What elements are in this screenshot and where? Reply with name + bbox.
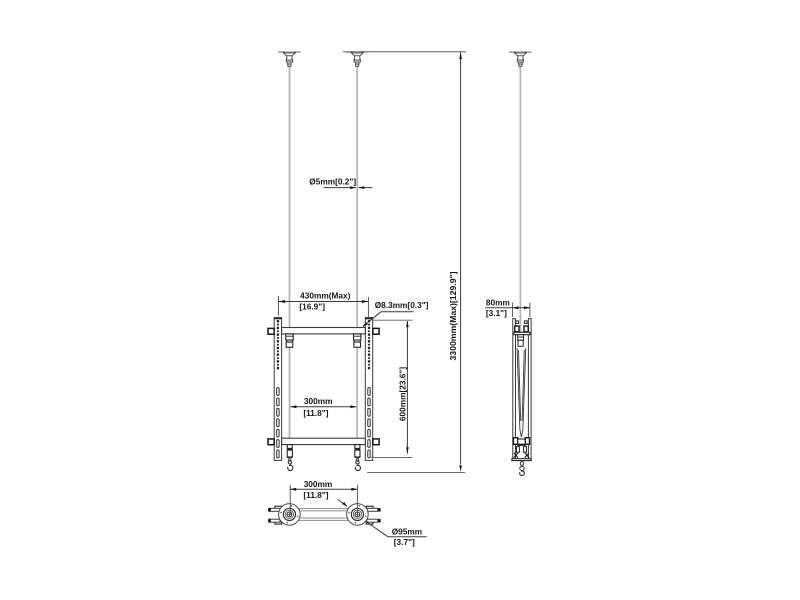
svg-text:600mm[23.6"]: 600mm[23.6"] xyxy=(397,367,407,421)
svg-text:[3.1"]: [3.1"] xyxy=(486,308,507,318)
svg-text:[16.9"]: [16.9"] xyxy=(299,302,325,312)
svg-text:Ø8.3mm[0.3"]: Ø8.3mm[0.3"] xyxy=(375,300,429,310)
svg-text:Ø5mm[0.2"]: Ø5mm[0.2"] xyxy=(309,176,356,186)
svg-text:[11.8"]: [11.8"] xyxy=(303,408,328,418)
svg-text:Ø95mm: Ø95mm xyxy=(392,527,422,537)
svg-text:[3.7"]: [3.7"] xyxy=(394,537,415,547)
svg-text:[11.8"]: [11.8"] xyxy=(303,490,328,500)
svg-text:300mm: 300mm xyxy=(304,396,333,406)
svg-text:300mm: 300mm xyxy=(304,479,333,489)
svg-text:3300mm(Max)[129.9"]: 3300mm(Max)[129.9"] xyxy=(448,271,458,360)
svg-text:80mm: 80mm xyxy=(486,298,510,308)
svg-text:430mm(Max): 430mm(Max) xyxy=(300,291,351,301)
